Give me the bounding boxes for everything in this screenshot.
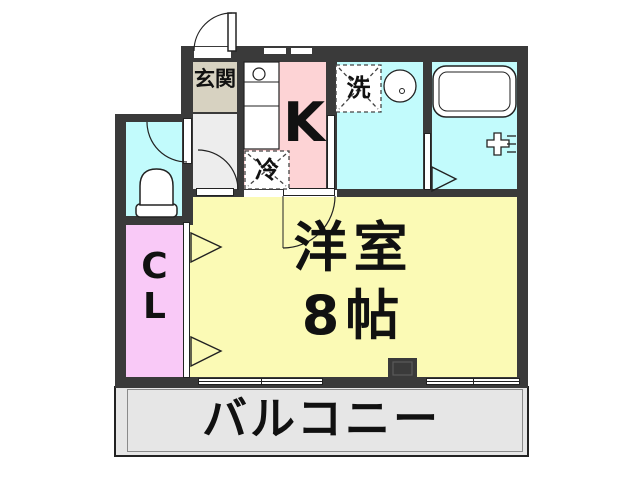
kitchen-sink xyxy=(253,68,265,80)
closet-label: C L xyxy=(126,247,183,327)
faucet-icon xyxy=(487,133,516,155)
toilet-door-arc xyxy=(147,122,187,162)
entrance-door xyxy=(194,13,236,51)
kitchen-counter xyxy=(244,62,279,149)
closet-label-c: C xyxy=(126,247,183,287)
refrigerator-label: 冷 xyxy=(245,157,289,183)
washer-label: 洗 xyxy=(336,75,381,101)
western-room-name: 洋室 xyxy=(190,214,517,282)
pillar-inner-outline xyxy=(393,362,412,375)
washbasin xyxy=(384,70,416,102)
western-room-size: 8帖 xyxy=(190,282,517,350)
kitchen-label: K xyxy=(281,96,327,150)
floorplan-canvas: 玄関 K 冷 洗 C L 洋室 8帖 バルコニー xyxy=(0,0,640,480)
hallway-door-arc xyxy=(198,150,238,190)
closet-label-l: L xyxy=(126,287,183,327)
balcony-label: バルコニー xyxy=(114,394,529,444)
western-room-label: 洋室 8帖 xyxy=(190,214,517,350)
toilet-fixture xyxy=(136,169,177,217)
bathroom-sliding-door-arrow xyxy=(432,167,456,191)
bathtub xyxy=(433,66,516,117)
genkan-label: 玄関 xyxy=(193,67,237,91)
